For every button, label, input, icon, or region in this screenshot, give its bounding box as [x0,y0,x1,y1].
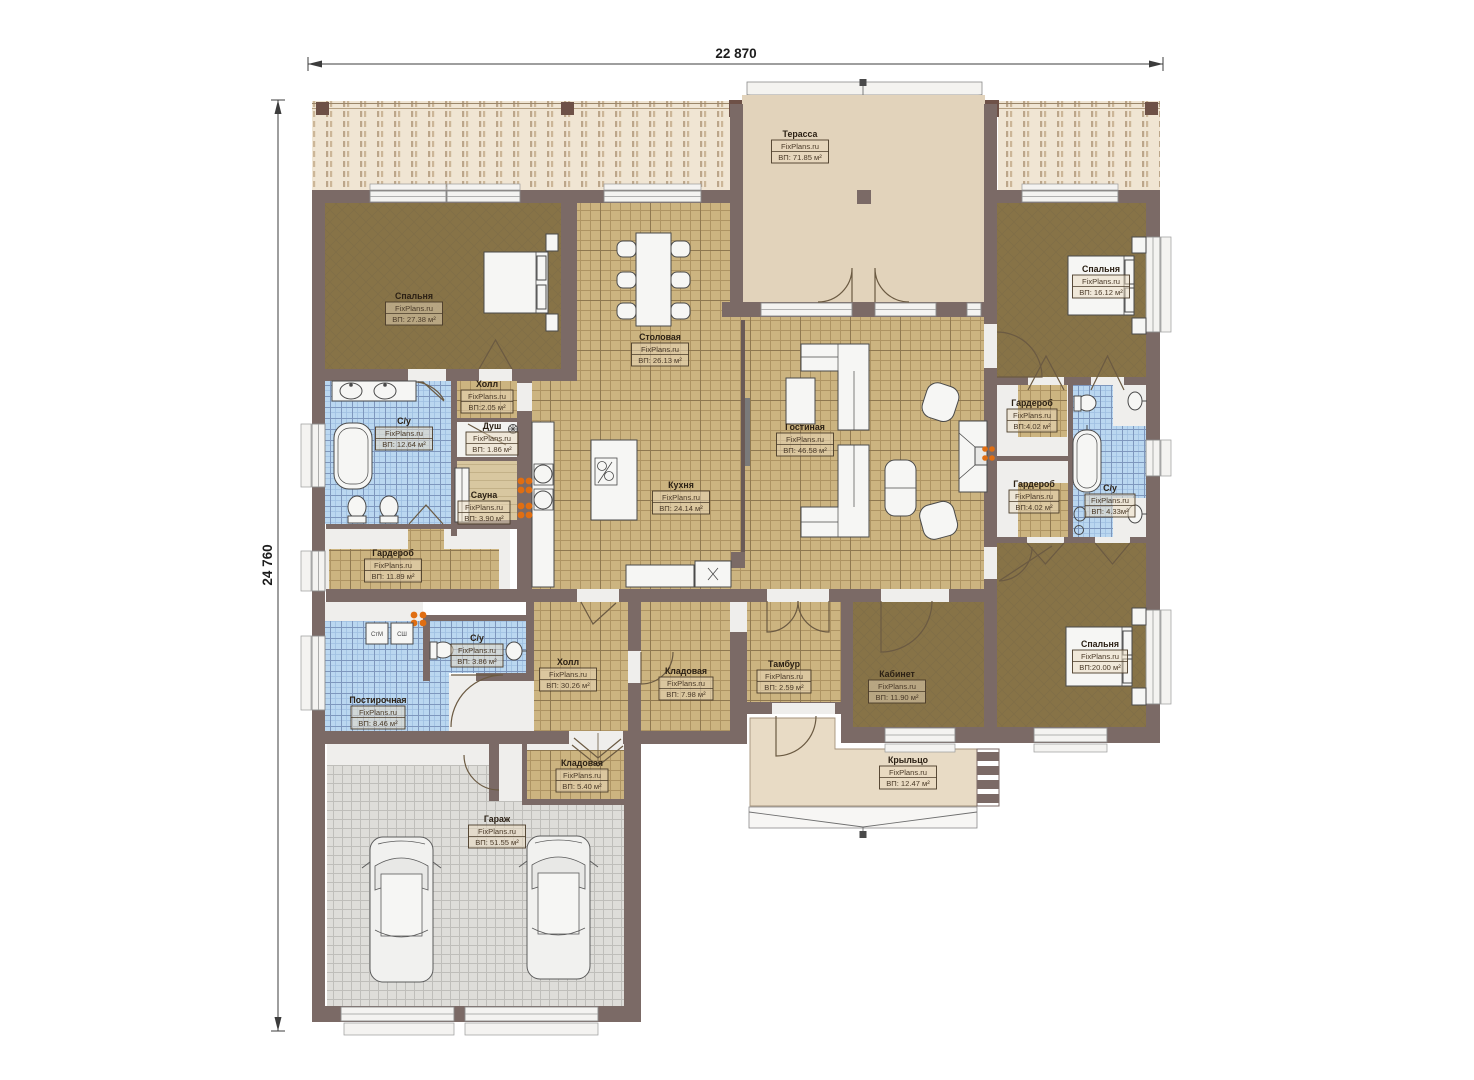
svg-text:ВП: 2.59 м²: ВП: 2.59 м² [764,683,804,692]
svg-text:FixPlans.ru: FixPlans.ru [1082,277,1120,286]
svg-text:FixPlans.ru: FixPlans.ru [374,561,412,570]
svg-text:Спальня: Спальня [395,291,433,301]
svg-text:Столовая: Столовая [639,332,681,342]
svg-text:Постирочная: Постирочная [349,695,406,705]
svg-text:FixPlans.ru: FixPlans.ru [458,646,496,655]
svg-text:ВП: 51.55 м²: ВП: 51.55 м² [475,838,519,847]
svg-text:Гараж: Гараж [484,814,511,824]
svg-text:Тамбур: Тамбур [768,659,801,669]
svg-text:Спальня: Спальня [1082,264,1120,274]
svg-text:FixPlans.ru: FixPlans.ru [395,304,433,313]
svg-text:FixPlans.ru: FixPlans.ru [549,670,587,679]
svg-text:FixPlans.ru: FixPlans.ru [765,672,803,681]
svg-text:Сауна: Сауна [471,490,498,500]
svg-text:FixPlans.ru: FixPlans.ru [641,345,679,354]
svg-text:ВП: 24.14 м²: ВП: 24.14 м² [659,504,703,513]
svg-text:Кладовая: Кладовая [561,758,603,768]
svg-text:Гардероб: Гардероб [372,548,414,558]
svg-text:Крыльцо: Крыльцо [888,755,929,765]
svg-text:ВП: 12.47 м²: ВП: 12.47 м² [886,779,930,788]
svg-text:ВП: 5.40 м²: ВП: 5.40 м² [562,782,602,791]
svg-text:Душ: Душ [483,421,502,431]
svg-text:ВП: 3.86 м²: ВП: 3.86 м² [457,657,497,666]
svg-text:22 870: 22 870 [715,46,756,61]
svg-text:FixPlans.ru: FixPlans.ru [465,503,503,512]
svg-text:Гардероб: Гардероб [1013,479,1055,489]
svg-text:ВП:2.05 м²: ВП:2.05 м² [468,403,506,412]
svg-text:Гостиная: Гостиная [785,422,825,432]
svg-text:Терасса: Терасса [783,129,818,139]
svg-text:FixPlans.ru: FixPlans.ru [1091,496,1129,505]
svg-text:С/у: С/у [470,633,484,643]
svg-text:FixPlans.ru: FixPlans.ru [1081,652,1119,661]
svg-text:ВП:4.02 м²: ВП:4.02 м² [1015,503,1053,512]
svg-text:FixPlans.ru: FixPlans.ru [662,493,700,502]
svg-text:Гардероб: Гардероб [1011,398,1053,408]
svg-text:ВП: 12.64 м²: ВП: 12.64 м² [382,440,426,449]
svg-text:FixPlans.ru: FixPlans.ru [667,679,705,688]
svg-text:ВП: 11.90 м²: ВП: 11.90 м² [875,693,919,702]
svg-text:ВП:4.02 м²: ВП:4.02 м² [1013,422,1051,431]
svg-text:24 760: 24 760 [260,544,275,585]
svg-text:FixPlans.ru: FixPlans.ru [563,771,601,780]
svg-text:FixPlans.ru: FixPlans.ru [1015,492,1053,501]
svg-text:FixPlans.ru: FixPlans.ru [878,682,916,691]
svg-text:ВП: 27.38 м²: ВП: 27.38 м² [392,315,436,324]
svg-text:ВП:20.00 м²: ВП:20.00 м² [1079,663,1121,672]
svg-text:FixPlans.ru: FixPlans.ru [468,392,506,401]
svg-text:Кладовая: Кладовая [665,666,707,676]
svg-text:FixPlans.ru: FixPlans.ru [359,708,397,717]
svg-text:Холл: Холл [476,379,498,389]
svg-text:СШ: СШ [397,632,407,638]
svg-text:Кухня: Кухня [668,480,694,490]
svg-text:ВП: 4.33м²: ВП: 4.33м² [1091,507,1129,516]
svg-text:Спальня: Спальня [1081,639,1119,649]
svg-text:ВП: 46.58 м²: ВП: 46.58 м² [783,446,827,455]
svg-text:ВП: 26.13 м²: ВП: 26.13 м² [638,356,682,365]
svg-text:FixPlans.ru: FixPlans.ru [786,435,824,444]
svg-text:ВП: 1.86 м²: ВП: 1.86 м² [472,445,512,454]
svg-text:ВП: 3.90 м²: ВП: 3.90 м² [464,514,504,523]
svg-text:Кабинет: Кабинет [879,669,915,679]
svg-text:С/у: С/у [1103,483,1117,493]
svg-text:FixPlans.ru: FixPlans.ru [478,827,516,836]
svg-text:FixPlans.ru: FixPlans.ru [385,429,423,438]
svg-text:FixPlans.ru: FixPlans.ru [889,768,927,777]
svg-text:FixPlans.ru: FixPlans.ru [1013,411,1051,420]
svg-text:СтМ: СтМ [371,632,383,638]
svg-text:ВП: 16.12 м²: ВП: 16.12 м² [1079,288,1123,297]
svg-text:ВП: 71.85 м²: ВП: 71.85 м² [778,153,822,162]
svg-text:Холл: Холл [557,657,579,667]
svg-text:С/у: С/у [397,416,411,426]
svg-text:ВП: 30.26 м²: ВП: 30.26 м² [546,681,590,690]
svg-text:ВП: 11.89 м²: ВП: 11.89 м² [371,572,415,581]
svg-text:ВП: 7.98 м²: ВП: 7.98 м² [666,690,706,699]
svg-text:FixPlans.ru: FixPlans.ru [781,142,819,151]
svg-text:ВП: 8.46 м²: ВП: 8.46 м² [358,719,398,728]
svg-text:FixPlans.ru: FixPlans.ru [473,434,511,443]
